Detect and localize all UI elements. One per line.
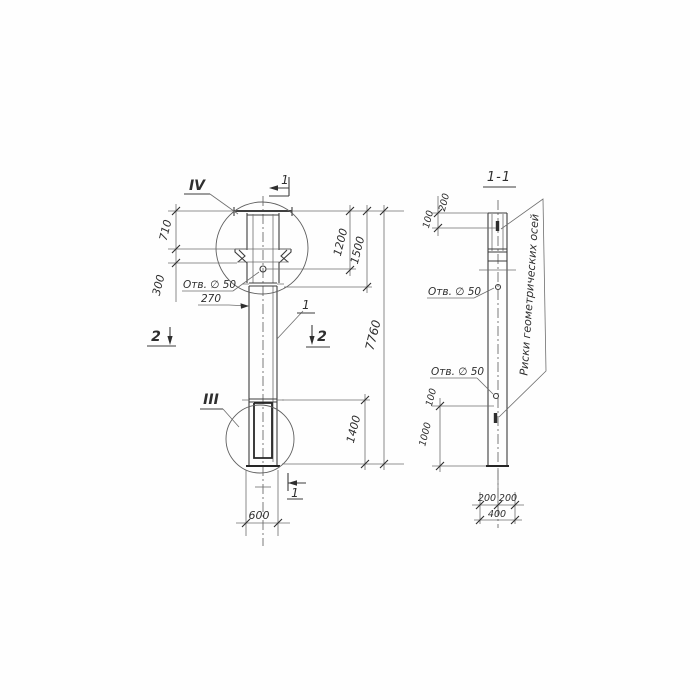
section-mark-2-left-label: 2 bbox=[151, 329, 161, 345]
side-view: 1-1 Риски геометрических осей Отв. ∅ 50 … bbox=[417, 170, 546, 528]
dim-1200: 1200 bbox=[331, 227, 350, 257]
side-bottom-width-dimensions: 200 200 400 bbox=[472, 468, 524, 524]
side-column-inner-lines bbox=[492, 214, 503, 251]
dim-1000: 1000 bbox=[417, 421, 434, 447]
front-hole-label: Отв. ∅ 50 bbox=[183, 279, 236, 291]
dim-270: 270 bbox=[201, 293, 221, 305]
side-view-title: 1-1 bbox=[487, 170, 511, 185]
dim-1400: 1400 bbox=[344, 414, 363, 444]
detail-circle-iii bbox=[226, 405, 294, 473]
dim-1500: 1500 bbox=[348, 235, 367, 265]
section-mark-1-top: 1 bbox=[269, 173, 289, 196]
dim-100-top: 100 bbox=[421, 209, 436, 229]
side-joints bbox=[488, 249, 507, 261]
corbel-left bbox=[235, 249, 247, 263]
dim-600: 600 bbox=[249, 509, 270, 522]
dim-200-left: 200 bbox=[478, 493, 496, 504]
dim-270-group: 270 bbox=[198, 293, 249, 309]
dim-200-right: 200 bbox=[499, 493, 517, 504]
section-mark-2-right: 2 bbox=[306, 325, 330, 347]
dim-710: 710 bbox=[157, 218, 175, 242]
side-top-dimensions: 200 100 bbox=[421, 192, 496, 236]
dim-7760: 7760 bbox=[363, 318, 384, 351]
section-mark-1-top-label: 1 bbox=[281, 173, 289, 187]
side-hole-callout-upper: Отв. ∅ 50 bbox=[427, 286, 494, 298]
pos-label: 1 bbox=[302, 298, 310, 312]
dim-400: 400 bbox=[488, 509, 506, 520]
axis-marks-label: Риски геометрических осей bbox=[517, 214, 541, 376]
side-bottom-left-dimensions: 100 1000 bbox=[417, 387, 494, 472]
joint-upper bbox=[249, 283, 277, 286]
corbel-right bbox=[279, 249, 291, 263]
section-mark-1-bottom: 1 bbox=[287, 473, 306, 500]
front-view: IV III 1 1 1 2 2 bbox=[147, 173, 404, 546]
detail-label-iii-leader bbox=[223, 409, 239, 427]
section-mark-1-bottom-label: 1 bbox=[291, 486, 299, 500]
side-hole-label-lower: Отв. ∅ 50 bbox=[431, 366, 484, 378]
axis-mark-bottom bbox=[494, 413, 497, 423]
section-mark-2-left: 2 bbox=[147, 327, 176, 346]
dim-300: 300 bbox=[150, 273, 168, 297]
front-right-dimensions: 1200 1500 7760 1400 bbox=[266, 205, 404, 470]
technical-drawing: IV III 1 1 1 2 2 bbox=[0, 0, 700, 700]
section-mark-2-right-label: 2 bbox=[317, 329, 327, 345]
side-hole-label-upper: Отв. ∅ 50 bbox=[428, 286, 481, 298]
dim-200-top: 200 bbox=[437, 192, 452, 212]
side-column-outline bbox=[488, 213, 507, 466]
pos-label-leader bbox=[277, 311, 303, 339]
drawing-canvas: IV III 1 1 1 2 2 bbox=[0, 0, 700, 700]
axis-marks-callout: Риски геометрических осей bbox=[499, 199, 546, 417]
side-hole-lower bbox=[494, 394, 499, 399]
detail-label-iii: III bbox=[203, 392, 219, 408]
detail-label-iv: IV bbox=[189, 178, 206, 194]
dim-100-bottom: 100 bbox=[424, 387, 439, 407]
side-hole-callout-lower: Отв. ∅ 50 bbox=[430, 366, 493, 394]
axis-mark-top bbox=[496, 221, 499, 231]
